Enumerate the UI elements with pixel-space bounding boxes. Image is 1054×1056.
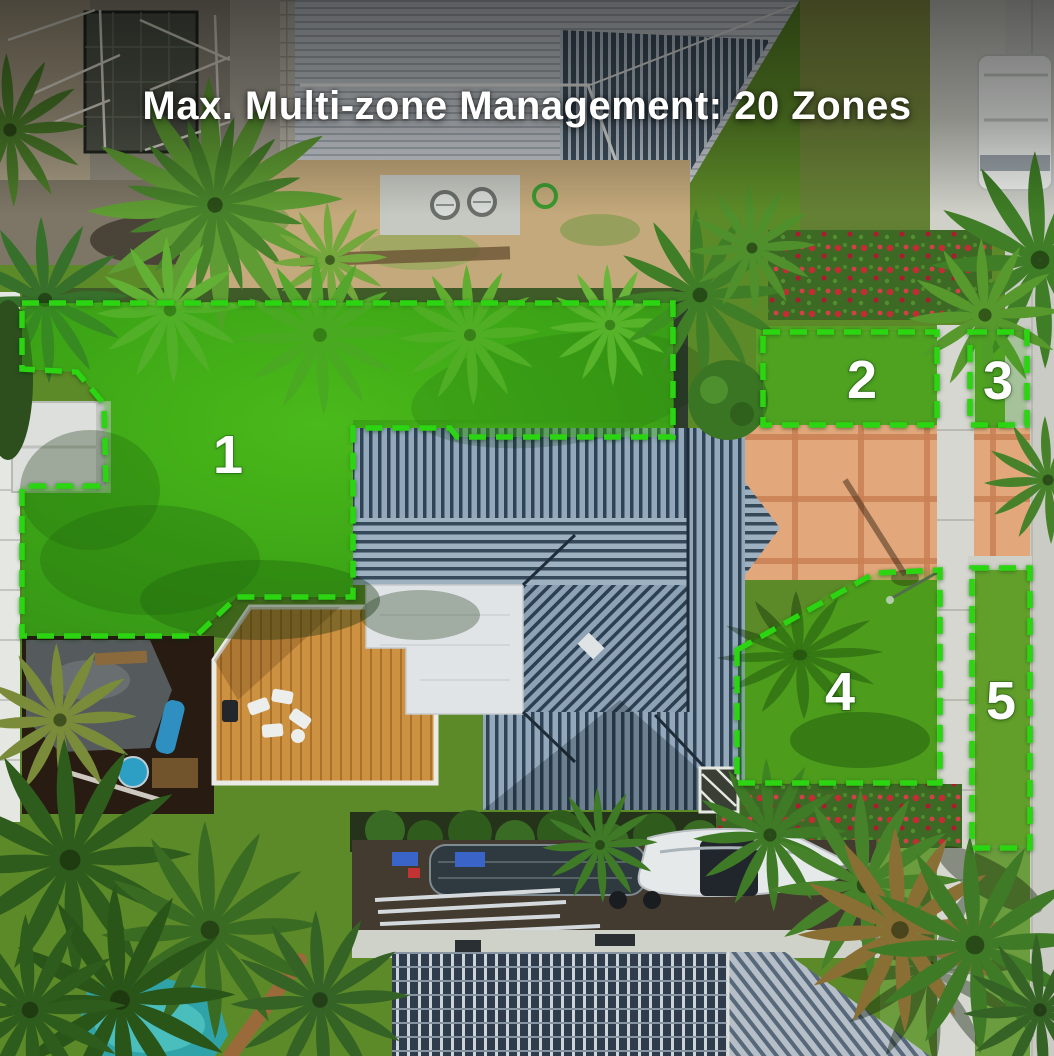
round-bush <box>688 360 768 440</box>
zone-3: 3 <box>970 332 1027 425</box>
aerial-photo: 1 2 3 4 5 <box>0 0 1054 1056</box>
picnic-table <box>152 758 198 788</box>
zone-4-label: 4 <box>825 662 855 722</box>
paver-driveway <box>735 425 937 580</box>
promo-image: 1 2 3 4 5 Max. Multi-zone Management: 20… <box>0 0 1054 1056</box>
headline: Max. Multi-zone Management: 20 Zones <box>0 84 1054 129</box>
zone-3-label: 3 <box>983 351 1013 411</box>
zone-2: 2 <box>763 332 937 425</box>
zone-5: 5 <box>972 568 1030 848</box>
zone-1-label: 1 <box>213 425 243 485</box>
zone-5-label: 5 <box>986 671 1016 731</box>
grill <box>222 700 238 722</box>
zone-2-label: 2 <box>847 350 877 410</box>
